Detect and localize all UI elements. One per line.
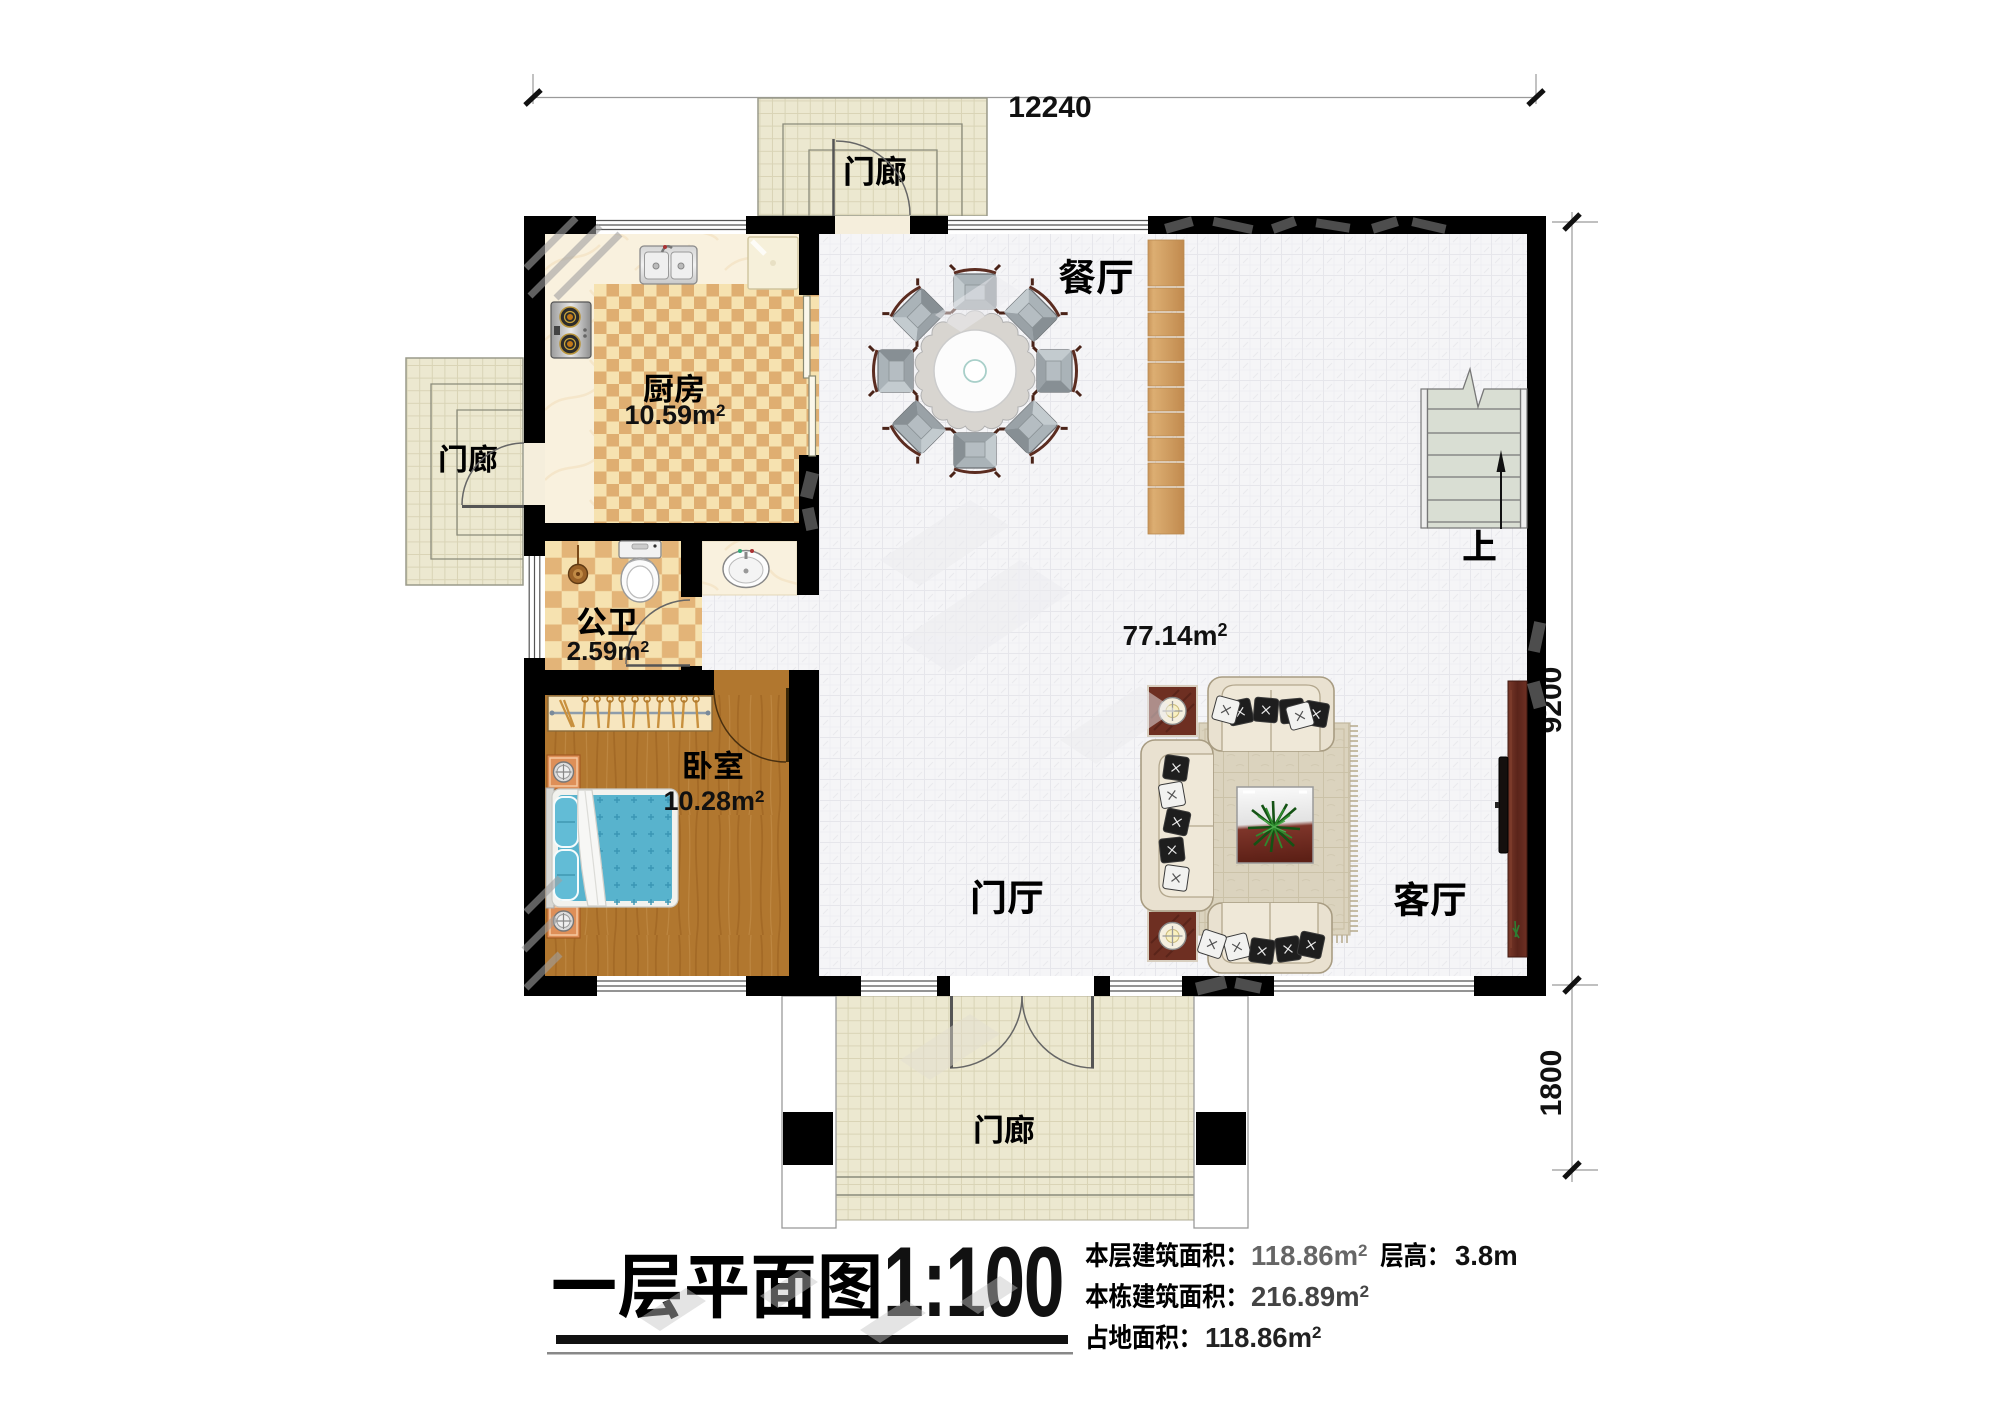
svg-text:3.8m: 3.8m bbox=[1455, 1240, 1518, 1271]
svg-text:216.89m2: 216.89m2 bbox=[1251, 1281, 1369, 1312]
svg-text:118.86m2: 118.86m2 bbox=[1205, 1322, 1322, 1353]
svg-text:118.86m2: 118.86m2 bbox=[1251, 1240, 1368, 1271]
svg-text:10.59m2: 10.59m2 bbox=[624, 400, 725, 430]
svg-text:2.59m2: 2.59m2 bbox=[567, 636, 650, 666]
svg-text:10.28m2: 10.28m2 bbox=[663, 786, 764, 816]
svg-text:77.14m2: 77.14m2 bbox=[1123, 620, 1228, 651]
svg-text:12240: 12240 bbox=[1008, 91, 1091, 124]
svg-text:1800: 1800 bbox=[1535, 1050, 1568, 1117]
